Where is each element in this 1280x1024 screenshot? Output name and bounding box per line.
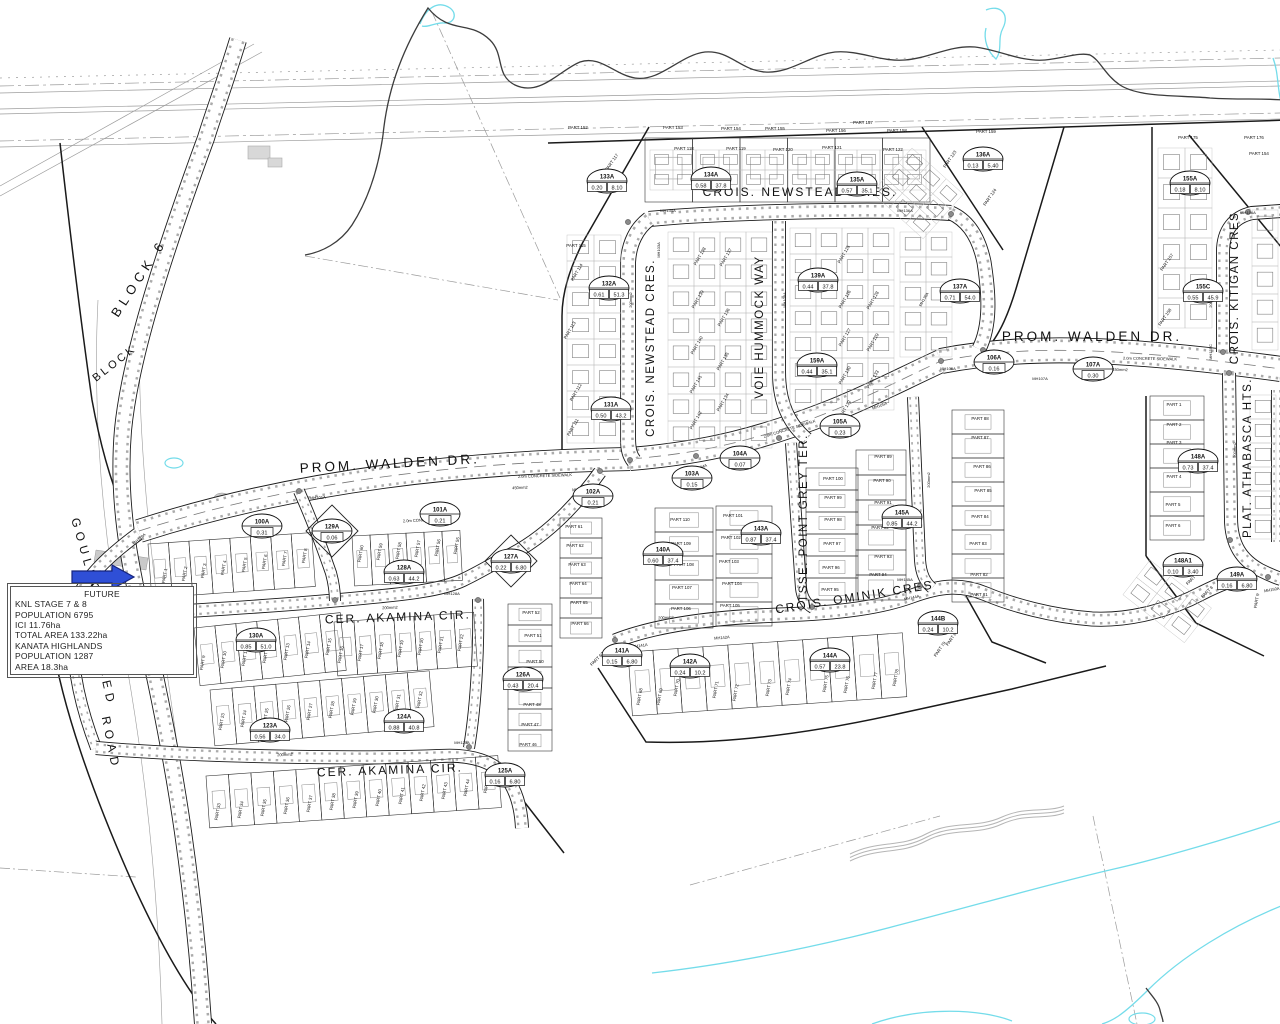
part-label: PART 21 — [437, 635, 445, 653]
house-footprint — [1163, 275, 1179, 290]
badge-value: 0.56 — [255, 735, 266, 741]
part-label: PART 75 — [822, 674, 830, 692]
part-label: PART 3 — [1167, 440, 1182, 445]
house-footprint — [905, 338, 921, 351]
house-footprint — [873, 260, 889, 273]
badge-id: 145A — [895, 511, 910, 517]
lot — [816, 306, 842, 332]
terrain-ripple — [850, 813, 1064, 861]
terrain-ripple — [850, 806, 1064, 854]
house-footprint — [847, 312, 863, 325]
lot — [788, 150, 811, 170]
part-label: PART 35 — [260, 798, 268, 816]
part-label: PART 60 — [357, 544, 365, 562]
street-label: PROM. WALDEN DR. — [1002, 329, 1182, 344]
part-label: PART 91 — [874, 500, 892, 505]
house-footprint — [905, 288, 921, 301]
house-footprint — [906, 154, 923, 171]
utility-label: MH134A — [660, 208, 676, 213]
part-label: PART 9 — [1253, 592, 1261, 608]
lot — [668, 313, 694, 340]
utility-label: MH156A — [1240, 210, 1256, 215]
house-footprint — [725, 292, 741, 306]
part-label: PART 68 — [636, 687, 644, 705]
lot-column — [806, 468, 858, 600]
manhole — [332, 597, 337, 602]
lot — [668, 394, 694, 421]
house-footprint — [1190, 155, 1206, 170]
badge-id: 133A — [600, 175, 615, 181]
manhole — [627, 457, 632, 462]
info-line: AREA 18.3ha — [15, 662, 189, 672]
lot — [194, 626, 221, 686]
house-footprint — [699, 346, 715, 360]
badge-value: 0.61 — [594, 293, 605, 299]
part-label: PART 34 — [237, 800, 245, 818]
part-label: PART 93 — [874, 554, 892, 559]
lot — [900, 257, 926, 282]
part-label: PART 141 — [689, 374, 703, 394]
house-footprint — [735, 663, 750, 686]
house-footprint — [747, 154, 761, 164]
part-label: PART 40 — [375, 788, 383, 806]
part-label: PART 138 — [693, 246, 707, 266]
stream-line — [872, 1011, 1012, 1024]
lot — [354, 619, 378, 674]
area-badge-102A: 102A0.21 — [573, 484, 613, 508]
part-label: PART 52 — [522, 610, 540, 615]
part-label: PART 46 — [519, 742, 537, 747]
part-label: PART 100 — [823, 476, 843, 481]
building-footprint — [248, 146, 270, 159]
lot — [594, 313, 621, 339]
badge-value: 0.31 — [257, 531, 268, 537]
house-footprint — [847, 234, 863, 247]
part-label: PART 13 — [283, 642, 291, 660]
lot — [298, 615, 325, 675]
part-label: PART 63 — [568, 562, 586, 567]
house-footprint — [892, 169, 909, 186]
house-footprint — [1163, 155, 1179, 170]
house-footprint — [678, 154, 692, 164]
lot — [952, 410, 1004, 434]
part-label: PART 1 — [161, 567, 169, 583]
badge-id: 107A — [1086, 363, 1101, 369]
survey-dash-line — [305, 256, 558, 300]
part-label: PART 157 — [853, 120, 873, 125]
badge-value: 0.24 — [675, 671, 686, 677]
lot — [720, 286, 746, 313]
badge-value: 0.30 — [1088, 374, 1099, 380]
manhole — [1227, 537, 1232, 542]
house-footprint — [673, 238, 689, 252]
badge-id: 124A — [397, 715, 412, 721]
area-badge-126A: 126A0.4320.4 — [503, 667, 543, 691]
part-label: PART 87 — [971, 435, 989, 440]
part-label: PART 101 — [723, 513, 743, 518]
lot — [278, 617, 305, 677]
house-footprint — [1257, 244, 1273, 258]
badge-value: 37.4 — [1203, 466, 1214, 472]
badge-id: 128A — [397, 566, 412, 572]
area-badge-131A: 131A0.5043.2 — [591, 397, 631, 421]
house-footprint — [821, 338, 837, 351]
part-label: PART 28 — [328, 700, 336, 718]
badge-value: 0.20 — [592, 186, 603, 192]
house-footprint — [673, 346, 689, 360]
badge-id: 131A — [604, 403, 619, 409]
lot — [1252, 266, 1278, 294]
utility-label: MH138A — [918, 291, 930, 307]
house-footprint — [1163, 215, 1179, 230]
part-label: PART 26 — [284, 704, 292, 722]
house-footprint — [798, 157, 825, 179]
part-label: PART 42 — [419, 783, 427, 801]
house-footprint — [701, 154, 715, 164]
badge-id: 140A — [656, 548, 671, 554]
lot — [1150, 516, 1204, 540]
house-footprint — [699, 319, 715, 333]
badge-value: 0.15 — [607, 660, 618, 666]
badge-value: 0.55 — [1188, 296, 1199, 302]
lot — [1150, 396, 1204, 420]
lot — [1158, 268, 1185, 298]
utility-label: MH106A — [940, 366, 956, 371]
part-label: PART 6 — [261, 553, 269, 569]
part-label: PART 88 — [971, 416, 989, 421]
lot — [703, 645, 732, 711]
manhole — [1265, 574, 1270, 579]
area-badge-136A: 136A0.135.40 — [963, 147, 1003, 171]
part-label: PART 95 — [821, 587, 839, 592]
house-footprint — [821, 312, 837, 325]
part-label: PART 176 — [1244, 135, 1264, 140]
part-label: PART 111 — [566, 417, 580, 437]
house-footprint — [770, 174, 784, 184]
part-label: PART 158 — [887, 128, 907, 133]
lot — [952, 482, 1004, 506]
house-footprint — [699, 400, 715, 414]
house-footprint — [821, 234, 837, 247]
house-footprint — [905, 238, 921, 251]
part-label: PART 59 — [376, 542, 384, 560]
area-badge-142A: 142A0.2410.2 — [670, 654, 710, 678]
badge-value: 0.87 — [746, 538, 757, 544]
badge-id: 101A — [433, 508, 448, 514]
lot — [560, 538, 602, 558]
house-footprint — [673, 400, 689, 414]
part-label: PART 37 — [306, 794, 314, 812]
house-footprint — [847, 260, 863, 273]
area-badge-143A: 143A0.8737.4 — [741, 521, 781, 545]
survey-dash-line — [690, 816, 940, 885]
badge-value: 23.8 — [835, 665, 846, 671]
area-badge-125A: 125A0.166.80 — [485, 763, 525, 787]
part-label: PART 44 — [463, 778, 471, 796]
future-stage-info-box: FUTURE KNL STAGE 7 & 8 POPULATION 6795 I… — [10, 586, 194, 675]
badge-id: 127A — [504, 555, 519, 561]
house-footprint — [673, 265, 689, 279]
lot — [716, 554, 772, 578]
badge-id: 132A — [602, 282, 617, 288]
area-badge-159A: 159A0.4435.1 — [797, 353, 837, 377]
badge-id: 105A — [833, 420, 848, 426]
badge-value: 37.8 — [823, 285, 834, 291]
road-goulbourn-forced-road — [121, 40, 238, 1024]
badge-id: 143A — [754, 527, 769, 533]
house-footprint — [1190, 245, 1206, 260]
house-footprint — [599, 345, 615, 358]
utility-label: MH136A — [897, 208, 913, 213]
area-badge-106A: 106A0.16 — [974, 350, 1014, 374]
house-footprint — [655, 154, 669, 164]
boundary-layer — [52, 120, 1280, 1024]
house-footprint — [750, 157, 777, 179]
area-badge-107A: 107A0.30 — [1073, 357, 1113, 381]
badge-value: 0.22 — [496, 566, 507, 572]
house-footprint — [770, 154, 784, 164]
badge-value: 0.58 — [696, 184, 707, 190]
part-label: PART 65 — [570, 600, 588, 605]
part-label: PART 130 — [838, 365, 852, 385]
part-label: PART 77 — [871, 671, 879, 689]
utility-label: MH107A — [1032, 376, 1048, 381]
site-plan-map: PART 152PART 153PART 154PART 155PART 156… — [0, 0, 1280, 1024]
part-label: PART 85 — [974, 488, 992, 493]
part-label: PART 38 — [329, 792, 337, 810]
badge-value: 0.13 — [968, 164, 979, 170]
lot — [1158, 208, 1185, 238]
lot — [868, 254, 894, 280]
part-label: PART 6 — [1166, 523, 1181, 528]
badge-id: 129A — [325, 525, 340, 531]
utility-label: 2.0m CONCRETE SIDEWALK — [518, 472, 573, 479]
part-label: PART 120 — [773, 147, 793, 152]
house-footprint — [816, 174, 830, 184]
lot — [720, 367, 746, 394]
manhole — [776, 435, 781, 440]
house-footprint — [725, 265, 741, 279]
house-footprint — [599, 371, 615, 384]
house-footprint — [905, 263, 921, 276]
house-footprint — [1255, 400, 1271, 412]
badge-value: 20.4 — [528, 684, 539, 690]
part-label: PART 83 — [969, 541, 987, 546]
street-label: CROIS. NEWSTEAD CRES. — [645, 259, 657, 437]
badge-value: 8.10 — [612, 186, 623, 192]
badge-id: 137A — [953, 285, 968, 291]
area-badge-103A: 103A0.15 — [672, 466, 712, 490]
badge-value: 0.21 — [435, 519, 446, 525]
house-footprint — [873, 234, 889, 247]
house-footprint — [931, 238, 947, 251]
part-label: PART 134 — [716, 392, 730, 412]
part-label: PART 20 — [417, 637, 425, 655]
part-label: PART 155 — [765, 126, 785, 131]
lot — [877, 633, 906, 699]
area-badge-104A: 104A0.07 — [720, 446, 760, 470]
utility-label: MH150A — [1264, 586, 1280, 594]
part-label: PART 84 — [971, 514, 989, 519]
lot — [206, 774, 232, 827]
lot — [560, 558, 602, 578]
house-footprint — [795, 234, 811, 247]
block-boundary — [922, 127, 1003, 250]
utility-label: 200mm2 — [277, 752, 294, 758]
house-footprint — [655, 174, 669, 184]
info-line: KANATA HIGHLANDS — [15, 641, 189, 651]
badge-id: 142A — [683, 660, 698, 666]
badge-id: 149A — [1230, 573, 1245, 579]
lot — [719, 150, 742, 170]
lot — [1185, 238, 1212, 268]
part-label: PART 123 — [942, 149, 958, 169]
house-footprint — [1255, 472, 1271, 484]
badge-id: 106A — [987, 356, 1002, 362]
house-footprint — [793, 174, 807, 184]
house-footprint — [869, 530, 894, 545]
manhole — [597, 468, 602, 473]
badge-value: 0.18 — [1175, 188, 1186, 194]
house-footprint — [673, 373, 689, 387]
part-label: PART 98 — [824, 517, 842, 522]
badge-value: 0.57 — [815, 665, 826, 671]
part-label: PART 56 — [434, 538, 442, 556]
house-footprint — [725, 400, 741, 414]
part-label: PART 73 — [765, 678, 773, 696]
part-label: PART 22 — [457, 633, 465, 651]
part-label: PART 27 — [306, 702, 314, 720]
house-footprint — [795, 338, 811, 351]
part-label: PART 24 — [240, 709, 248, 727]
part-label: PART 127 — [838, 327, 852, 347]
info-line: KNL STAGE 7 & 8 — [15, 599, 189, 609]
area-badge-155A: 155A0.188.10 — [1170, 171, 1210, 195]
lot — [650, 150, 673, 170]
badge-id: 144A — [823, 654, 838, 660]
area-badge-139A: 139A0.4437.8 — [798, 268, 838, 292]
lot — [1185, 208, 1212, 238]
lot — [790, 228, 816, 254]
badge-id: 139A — [811, 274, 826, 280]
part-label: PART 69 — [656, 687, 664, 705]
area-badge-137A: 137A0.7154.0 — [940, 279, 980, 303]
part-label: PART 58 — [395, 541, 403, 559]
lot — [742, 150, 765, 170]
house-footprint — [572, 371, 588, 384]
manhole — [693, 453, 698, 458]
part-label: PART 8 — [301, 547, 309, 563]
house-footprint — [862, 154, 876, 164]
lot — [508, 730, 552, 751]
badge-value: 44.2 — [907, 522, 918, 528]
badge-id: 148A — [1191, 455, 1206, 461]
badge-value: 0.71 — [945, 296, 956, 302]
house-footprint — [931, 263, 947, 276]
part-label: PART 61 — [565, 524, 583, 529]
part-label: PART 152 — [568, 125, 588, 130]
house-footprint — [923, 170, 940, 187]
part-label: PART 23 — [218, 712, 226, 730]
part-label: PART 17 — [357, 643, 365, 661]
lot — [765, 150, 788, 170]
subdivision-plan-page: PART 152PART 153PART 154PART 155PART 156… — [0, 0, 1280, 1024]
area-badge-149A: 149A0.166.80 — [1217, 567, 1257, 591]
badge-value: 0.57 — [842, 189, 853, 195]
label-layer: PART 152PART 153PART 154PART 155PART 156… — [68, 120, 1280, 821]
part-label: PART 119 — [726, 146, 746, 151]
utility-label: MH128A — [444, 591, 460, 596]
lot — [790, 306, 816, 332]
utility-label: 2.0m CONCRETE SIDEWALK — [1123, 356, 1177, 362]
house-footprint — [1255, 520, 1271, 532]
part-label: PART 103 — [719, 559, 739, 564]
part-label: PART 175 — [1178, 135, 1198, 140]
part-label: PART 32 — [416, 690, 424, 708]
part-label: PART 57 — [414, 539, 422, 557]
badge-value: 0.85 — [887, 522, 898, 528]
house-footprint — [795, 390, 811, 403]
lot — [926, 232, 952, 257]
utility-label: 200mm2 — [1232, 441, 1237, 457]
lot — [655, 580, 713, 604]
part-label: PART 113 — [563, 320, 577, 340]
part-label: PART 50 — [526, 659, 544, 664]
badge-value: 0.16 — [1222, 584, 1233, 590]
badge-value: 43.2 — [616, 414, 627, 420]
lot — [374, 618, 398, 673]
badge-id: 102A — [586, 490, 601, 496]
badge-value: 51.3 — [614, 293, 625, 299]
lot-column — [560, 518, 602, 638]
lot — [668, 232, 694, 259]
badge-value: 35.1 — [822, 370, 833, 376]
house-footprint — [678, 174, 692, 184]
pond — [165, 458, 183, 468]
utility-label: 200mm2 — [658, 615, 675, 621]
badge-value: 51.0 — [261, 645, 272, 651]
part-label: PART 3 — [200, 562, 208, 578]
area-badge-100A: 100A0.31 — [242, 514, 282, 538]
part-label: PART 139 — [691, 289, 705, 309]
part-label: PART 66 — [571, 621, 589, 626]
badge-id: 100A — [255, 520, 270, 526]
info-line: FUTURE — [15, 589, 189, 599]
manhole — [466, 744, 471, 749]
badge-id: 159A — [810, 359, 825, 365]
lot — [926, 307, 952, 332]
house-footprint — [599, 423, 615, 436]
lot — [668, 259, 694, 286]
badge-value: 10.2 — [943, 628, 954, 634]
rail-corridor-line — [0, 58, 1280, 86]
part-label: PART 97 — [823, 541, 841, 546]
part-label: PART 82 — [970, 572, 988, 577]
badge-id: 134A — [704, 173, 719, 179]
area-badge-132A: 132A0.6151.3 — [589, 276, 629, 300]
house-band — [1252, 210, 1278, 350]
area-badge-128A: 128A0.6344.2 — [384, 560, 424, 584]
manhole — [475, 597, 480, 602]
area-badge-140A: 140A0.6037.4 — [643, 542, 683, 566]
badge-id: 144B — [931, 617, 946, 623]
part-label: PART 43 — [441, 781, 449, 799]
survey-dash-line — [432, 12, 560, 298]
lot — [650, 170, 673, 190]
lot — [952, 458, 1004, 482]
house-footprint — [747, 174, 761, 184]
area-badge-148A1: 148A10.103.40 — [1163, 553, 1203, 577]
